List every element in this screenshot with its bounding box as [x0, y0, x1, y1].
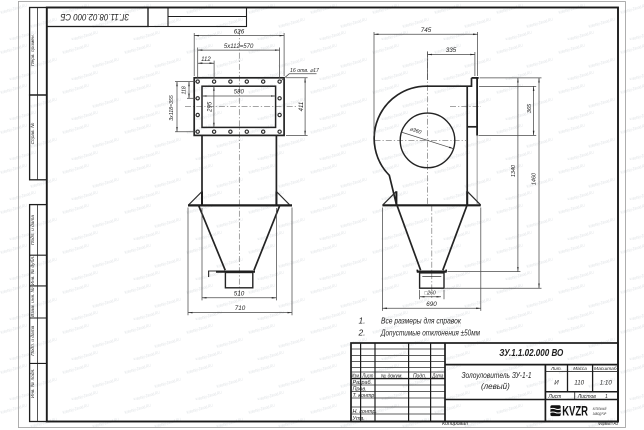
svg-text:И: И — [554, 380, 559, 387]
svg-text:710: 710 — [235, 305, 246, 312]
svg-text:580: 580 — [234, 90, 245, 96]
svg-text:118: 118 — [181, 86, 187, 94]
svg-text:Инв. № дубл.: Инв. № дубл. — [30, 256, 36, 286]
svg-text:Масштаб: Масштаб — [594, 366, 617, 371]
svg-text:1:10: 1:10 — [600, 380, 613, 387]
svg-text:Подп. и дата: Подп. и дата — [30, 325, 36, 355]
svg-text:Лит.: Лит. — [550, 366, 562, 371]
svg-text:Утв.: Утв. — [352, 416, 365, 422]
svg-text:5x112=570: 5x112=570 — [224, 44, 254, 50]
svg-text:16 отв. ⌀17: 16 отв. ⌀17 — [290, 68, 320, 74]
svg-text:№ докум.: № докум. — [381, 374, 403, 380]
svg-text:626: 626 — [234, 28, 245, 35]
svg-text:1460: 1460 — [532, 172, 538, 185]
svg-text:Изм.: Изм. — [352, 374, 361, 380]
svg-text:(левый): (левый) — [481, 382, 510, 391]
svg-text:Пров.: Пров. — [353, 386, 367, 392]
svg-text:295: 295 — [208, 101, 214, 113]
svg-text:Золоуловитель ЗУ-1-1: Золоуловитель ЗУ-1-1 — [462, 370, 532, 380]
svg-text:112: 112 — [201, 57, 211, 63]
svg-text:Инв. № подл.: Инв. № подл. — [30, 368, 36, 398]
svg-text:411: 411 — [299, 102, 305, 112]
svg-text:Допустимые отклонения ±50мм: Допустимые отклонения ±50мм — [380, 328, 480, 338]
svg-text:Т. контр.: Т. контр. — [353, 393, 376, 399]
svg-text:510: 510 — [234, 290, 245, 297]
svg-text:Масса: Масса — [573, 366, 587, 371]
svg-text:Перв. примен.: Перв. примен. — [30, 34, 36, 66]
svg-text:ЗГ.11.08.02.000 СБ: ЗГ.11.08.02.000 СБ — [60, 11, 129, 22]
svg-text:Формат A3: Формат A3 — [598, 421, 618, 427]
svg-text:110: 110 — [574, 380, 584, 387]
svg-text:335: 335 — [446, 47, 457, 54]
svg-text:Подп. и дата: Подп. и дата — [30, 215, 36, 245]
svg-text:□260: □260 — [424, 290, 436, 296]
svg-text:Копировал: Копировал — [442, 421, 468, 427]
svg-text:1.: 1. — [359, 315, 366, 325]
svg-text:Все размеры для справок: Все размеры для справок — [381, 315, 462, 325]
svg-text:Лист: Лист — [547, 394, 561, 400]
svg-text:КОТЕЛЬНЫЙ: КОТЕЛЬНЫЙ — [593, 407, 607, 411]
svg-text:1340: 1340 — [511, 164, 517, 177]
svg-text:Разраб.: Разраб. — [353, 380, 373, 386]
svg-text:Лист: Лист — [361, 374, 373, 380]
svg-text:365: 365 — [527, 103, 533, 113]
svg-text:690: 690 — [426, 301, 437, 308]
svg-text:3x118=355: 3x118=355 — [169, 95, 175, 121]
svg-text:ЗАВОД РЭР: ЗАВОД РЭР — [593, 412, 607, 416]
svg-text:ЗУ.1.1.02.000 ВО: ЗУ.1.1.02.000 ВО — [499, 348, 563, 359]
svg-text:Дата: Дата — [431, 374, 443, 380]
svg-text:Листов: Листов — [577, 394, 597, 400]
svg-text:Взам. инв. №: Взам. инв. № — [30, 287, 36, 317]
svg-text:1: 1 — [605, 394, 608, 400]
svg-text:Подп.: Подп. — [413, 374, 426, 380]
svg-text:745: 745 — [421, 27, 432, 34]
svg-text:KVZR: KVZR — [562, 404, 588, 419]
svg-text:Справ. №: Справ. № — [30, 123, 36, 145]
svg-text:2.: 2. — [358, 328, 366, 338]
svg-text:Н. контр.: Н. контр. — [353, 409, 377, 415]
